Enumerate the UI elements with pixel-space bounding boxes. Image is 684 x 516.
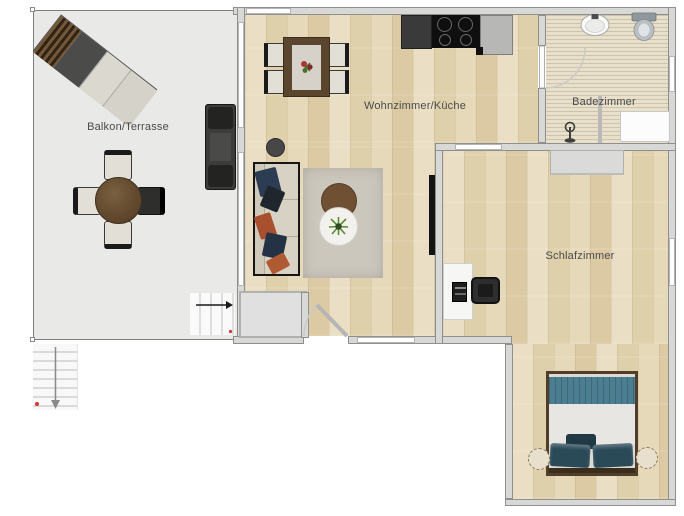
door-arc-living bbox=[304, 305, 317, 336]
bathroom-label: Badezimmer bbox=[572, 96, 636, 108]
red-marker-dot bbox=[35, 402, 39, 406]
red-marker-dot bbox=[229, 330, 232, 333]
door-arc-bathroom bbox=[545, 48, 585, 88]
living-kitchen-label: Wohnzimmer/Küche bbox=[364, 100, 466, 112]
shower-base bbox=[565, 138, 576, 142]
washbasin-tap-icon bbox=[592, 14, 599, 19]
plant-center bbox=[335, 223, 341, 229]
washbasin-bowl bbox=[586, 20, 605, 33]
arrow-right-head bbox=[226, 301, 233, 309]
balcony-label: Balkon/Terrasse bbox=[87, 121, 169, 133]
arrow-down-head bbox=[51, 400, 60, 409]
door-leaf-bathroom bbox=[540, 46, 545, 88]
flower-bouquet-icon bbox=[301, 61, 313, 73]
floorplan-canvas: Balkon/Terrasse Wohnzimmer/Küche Badezim… bbox=[0, 0, 684, 516]
door-leaf-living bbox=[317, 305, 347, 336]
bedroom-label: Schlafzimmer bbox=[545, 250, 614, 262]
toilet-bowl-inner bbox=[639, 24, 650, 37]
